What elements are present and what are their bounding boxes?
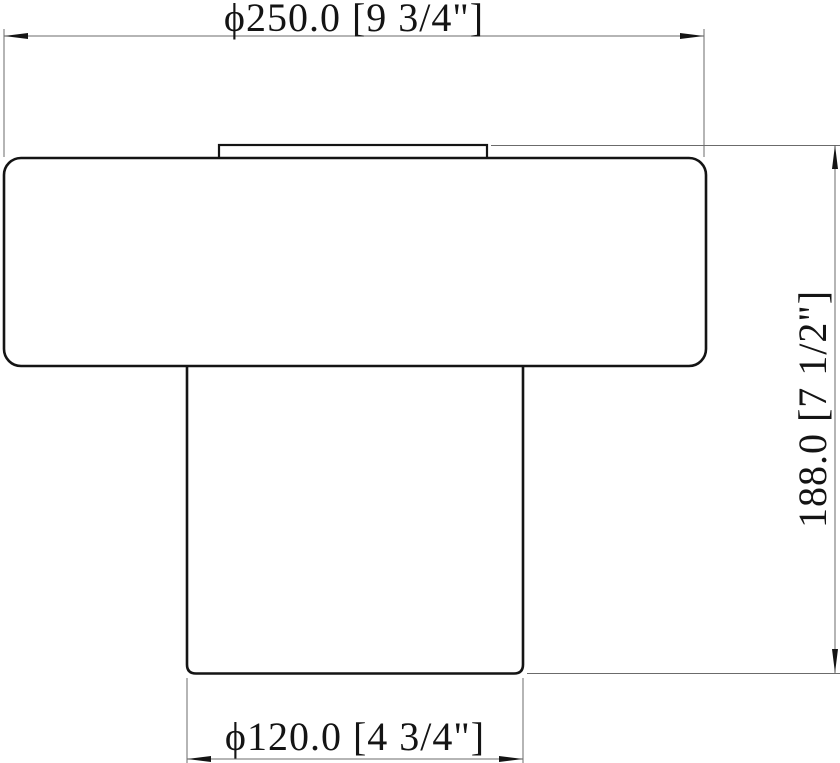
- part-outline: [4, 145, 706, 674]
- technical-drawing: ϕ250.0 [9 3/4"] 188.0 [7 1/2"]: [0, 0, 840, 763]
- upper-body-outline: [4, 158, 706, 366]
- height-label: 188.0 [7 1/2"]: [790, 290, 835, 528]
- arrow-right-icon: [680, 33, 704, 39]
- arrow-down-icon: [832, 649, 838, 673]
- lower-body-outline: [187, 364, 523, 674]
- arrow-left-icon: [187, 756, 211, 762]
- dimension-bottom-diameter: ϕ120.0 [4 3/4"]: [187, 678, 523, 763]
- arrow-right-icon: [499, 756, 523, 762]
- top-diameter-label: ϕ250.0 [9 3/4"]: [224, 0, 484, 40]
- arrow-left-icon: [4, 33, 28, 39]
- dimension-top-diameter: ϕ250.0 [9 3/4"]: [4, 0, 704, 157]
- bottom-diameter-label: ϕ120.0 [4 3/4"]: [225, 714, 485, 759]
- arrow-up-icon: [832, 145, 838, 169]
- drawing-canvas: ϕ250.0 [9 3/4"] 188.0 [7 1/2"]: [0, 0, 840, 763]
